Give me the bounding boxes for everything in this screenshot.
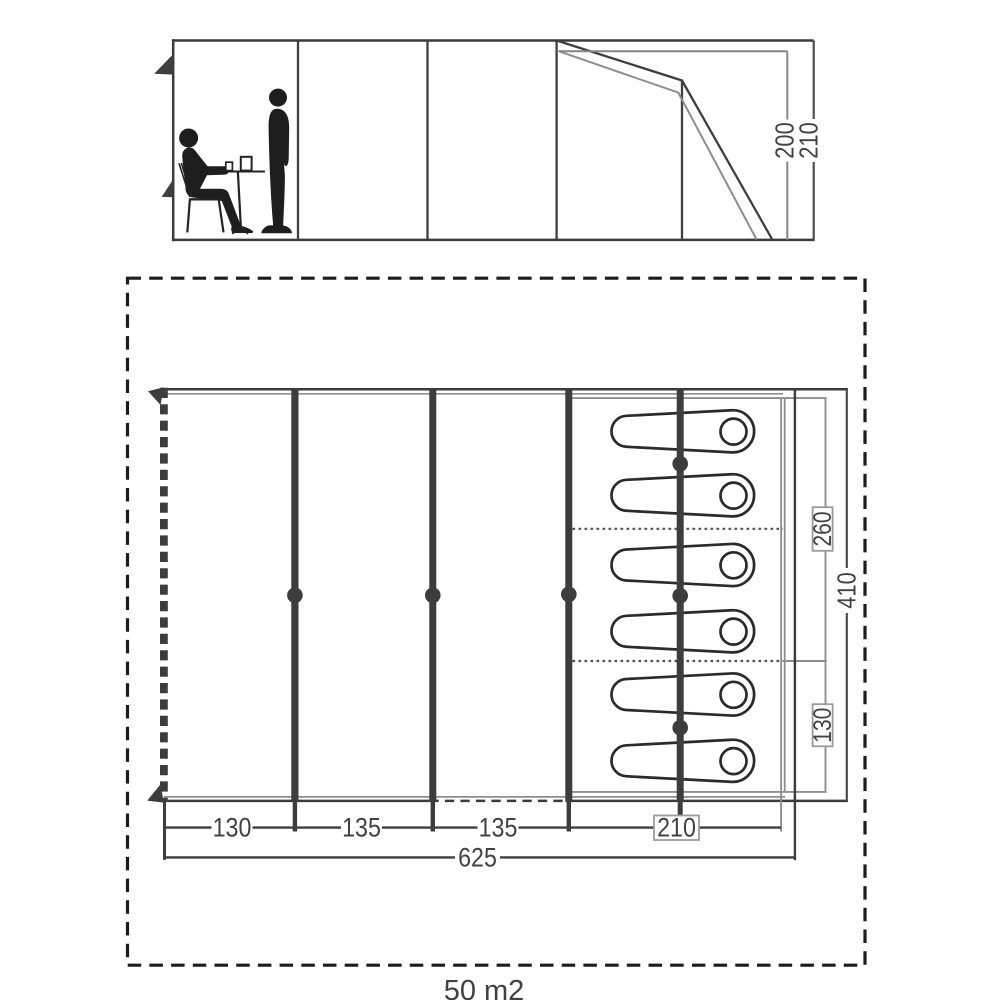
svg-text:135: 135 [342, 813, 381, 843]
svg-text:210: 210 [795, 122, 824, 158]
svg-text:260: 260 [808, 511, 836, 546]
svg-text:135: 135 [479, 813, 518, 843]
svg-text:130: 130 [213, 813, 252, 843]
svg-text:210: 210 [657, 813, 696, 843]
svg-text:410: 410 [833, 572, 862, 608]
svg-text:50 m2: 50 m2 [444, 975, 525, 1000]
svg-text:130: 130 [808, 708, 836, 743]
svg-text:625: 625 [458, 843, 497, 873]
